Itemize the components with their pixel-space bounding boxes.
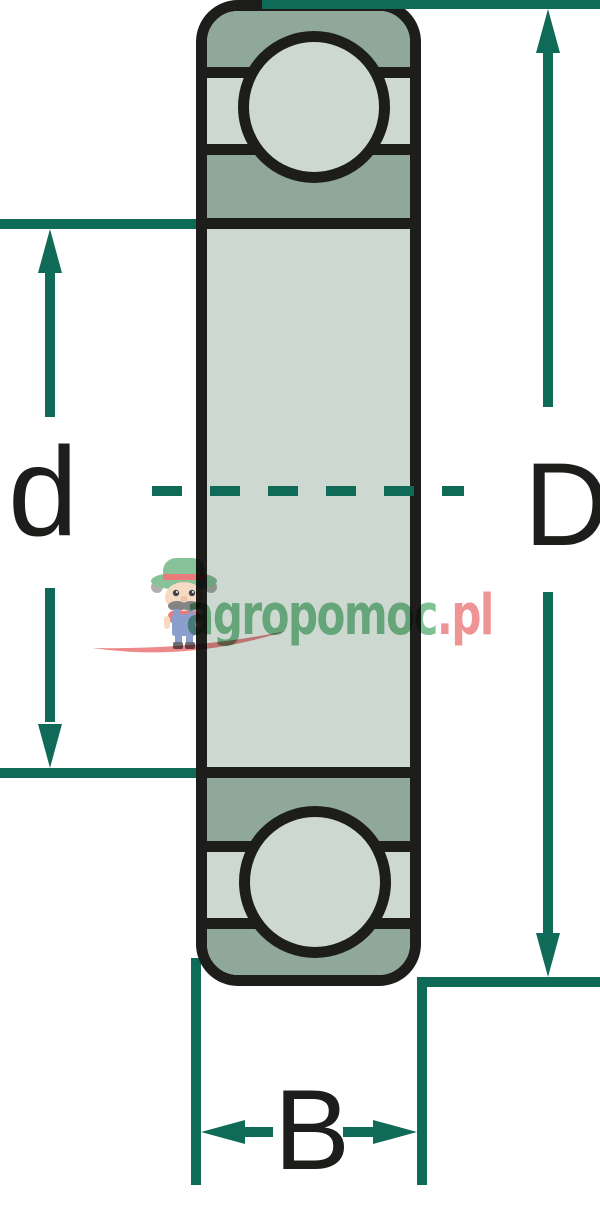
- b-width-shaft-left: [243, 1127, 273, 1137]
- width-label: B: [274, 1074, 350, 1188]
- watermark-brand-text: agropomoc.pl: [186, 588, 493, 644]
- b-width-arrowhead-right: [373, 1120, 417, 1144]
- d-bore-arrow-shaft-top: [45, 271, 55, 417]
- d-outer-arrow-shaft-top: [543, 50, 553, 407]
- d-bore-arrow-shaft-bottom: [45, 588, 55, 722]
- b-width-arrowhead-left: [201, 1120, 245, 1144]
- watermark-brand-green: agropomoc: [186, 583, 437, 648]
- b-width-shaft-right: [343, 1127, 373, 1137]
- centre-axis-dashed-line: [152, 486, 464, 496]
- d-bore-dim-line-bottom: [0, 768, 196, 778]
- d-outer-arrowhead-up: [536, 9, 560, 53]
- bore-diameter-label: d: [8, 429, 78, 555]
- d-bore-arrowhead-down: [38, 724, 62, 768]
- d-bore-dim-line-top: [0, 219, 196, 229]
- outer-diameter-label: D: [524, 446, 600, 564]
- watermark-brand-red: .pl: [437, 583, 493, 648]
- bore-line-top: [207, 218, 410, 229]
- bearing-ball-bottom: [239, 806, 391, 958]
- d-outer-arrow-shaft-bottom: [543, 592, 553, 934]
- b-extension-line-left: [191, 958, 201, 1185]
- d-bore-arrowhead-up: [38, 229, 62, 273]
- bore-line-bottom: [207, 767, 410, 778]
- d-outer-arrowhead-down: [536, 933, 560, 977]
- bearing-ball-top: [238, 31, 390, 183]
- b-extension-line-right: [417, 977, 427, 1185]
- d-outer-dim-line-bottom: [418, 977, 600, 987]
- d-outer-dim-line-top: [262, 0, 600, 9]
- bearing-dimension-diagram: D d B: [0, 0, 600, 1205]
